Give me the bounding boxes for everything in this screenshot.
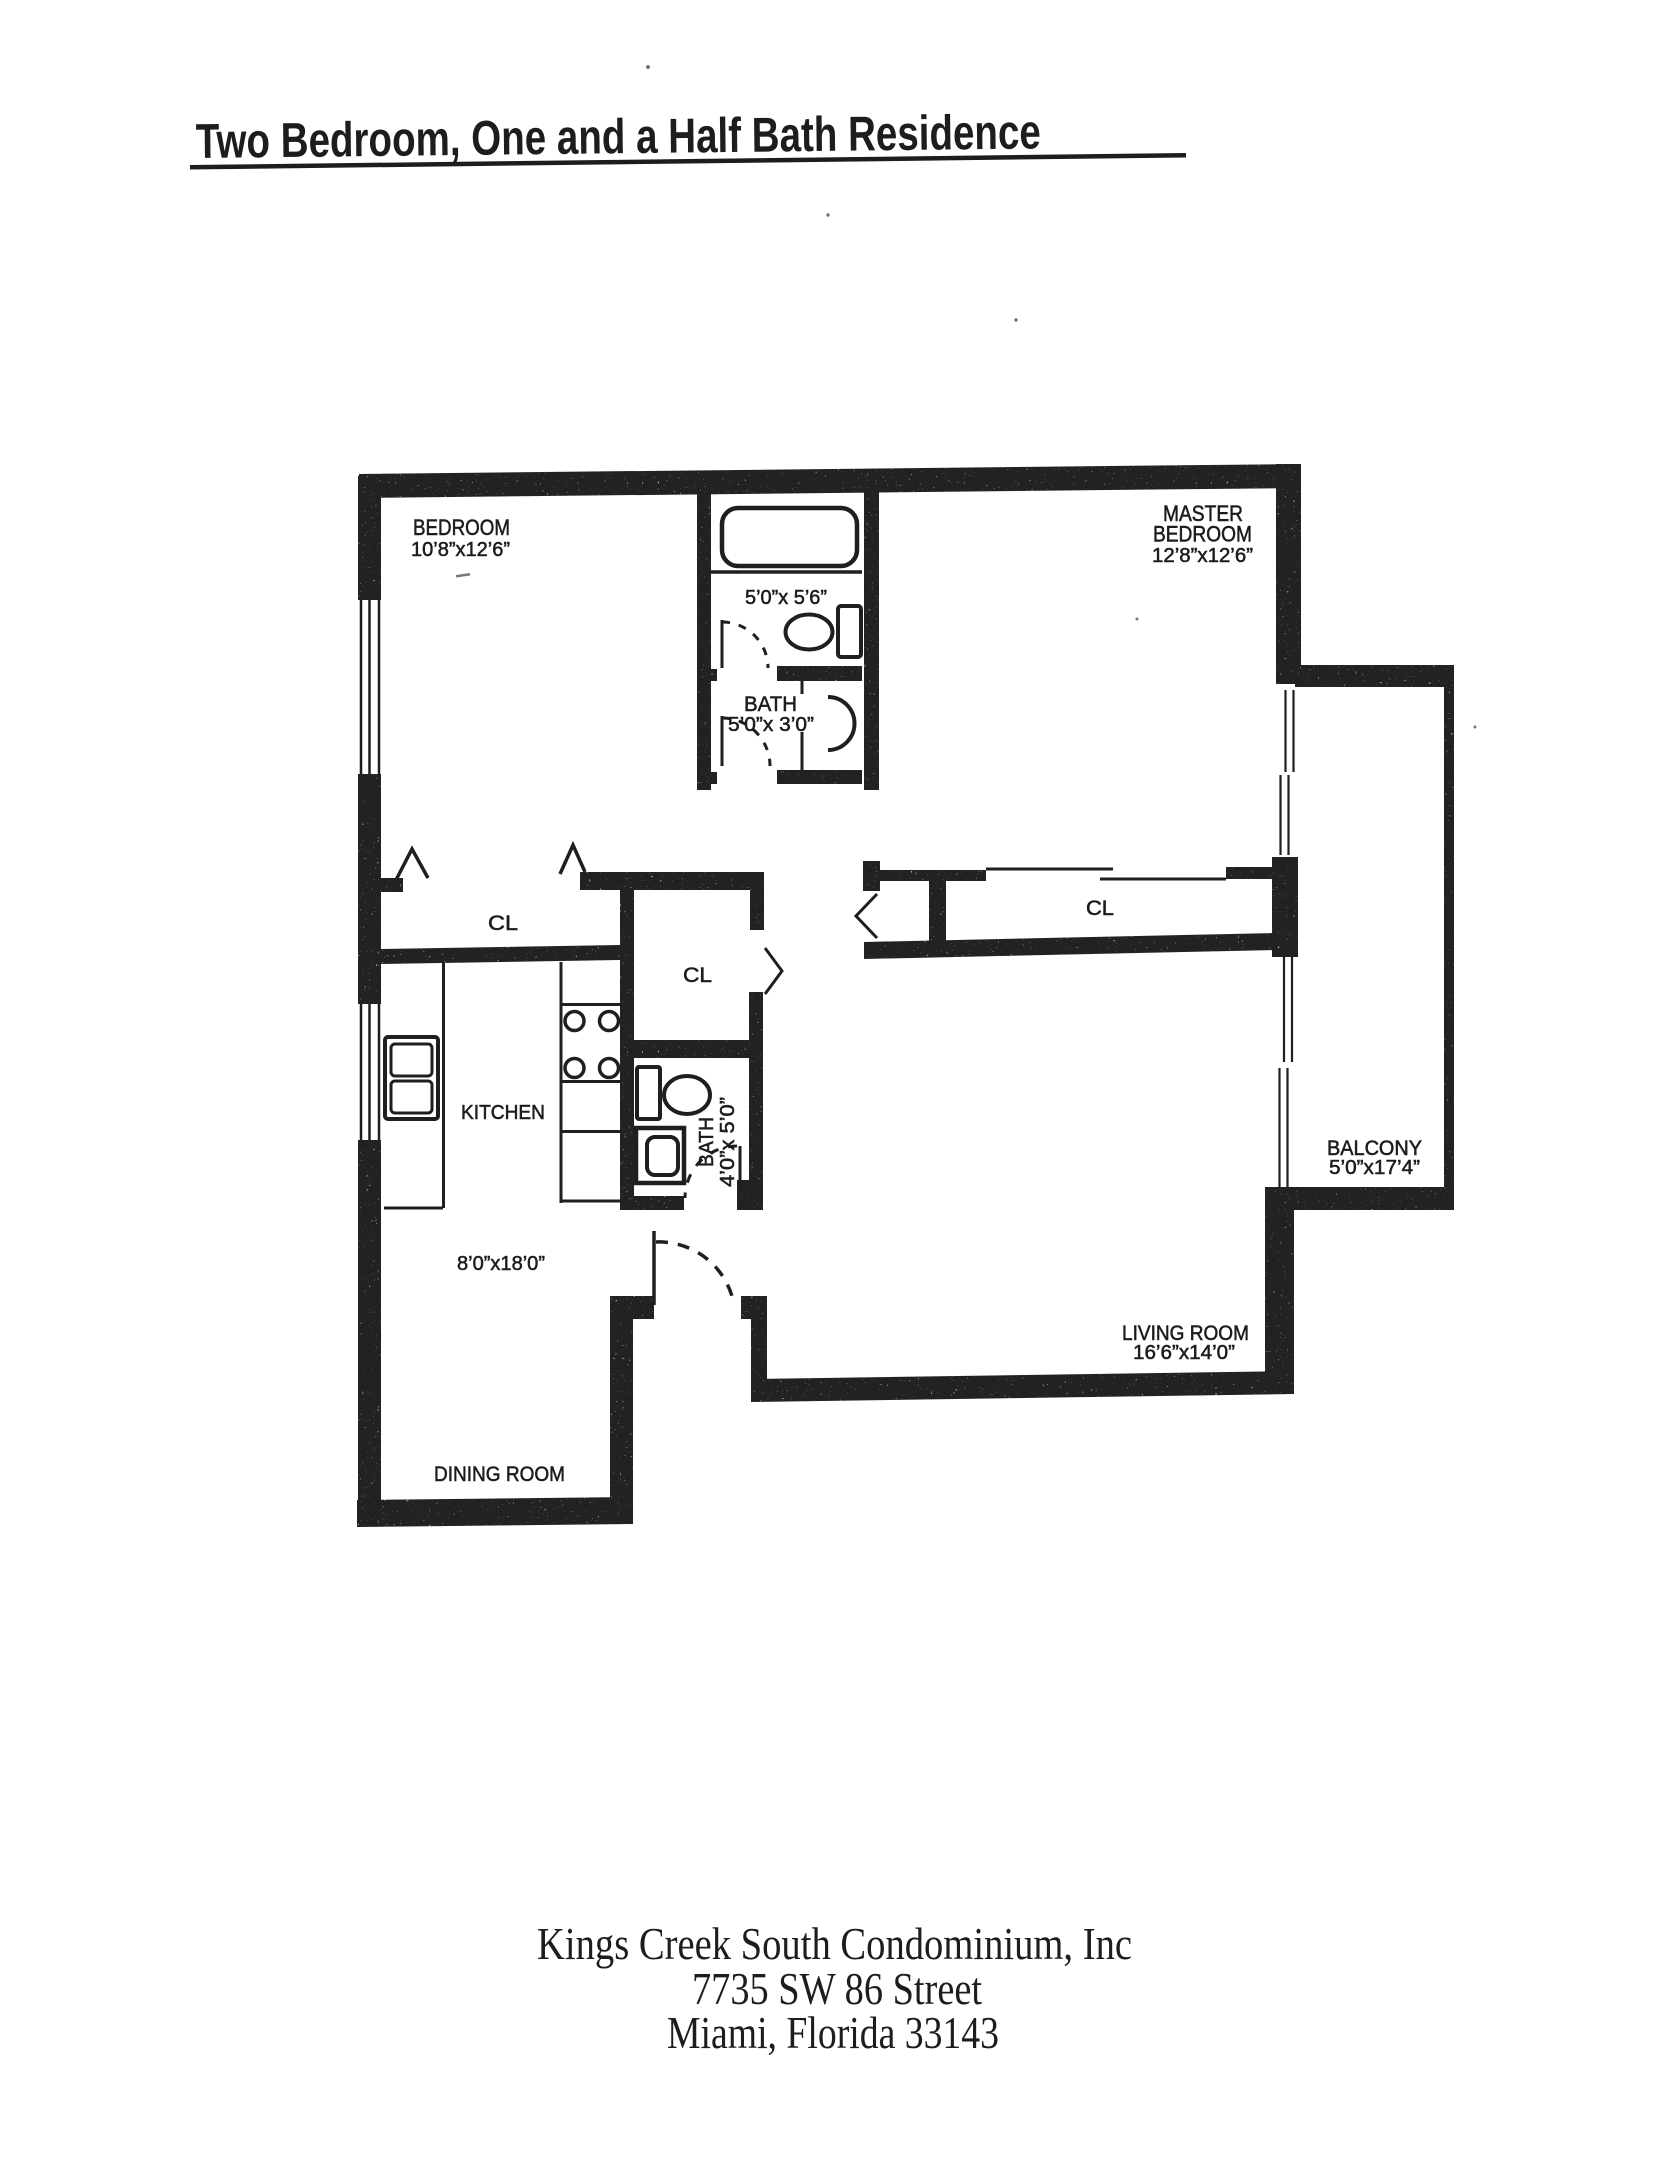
svg-text:BATH: BATH	[696, 1117, 718, 1167]
svg-text:5’0”x 3’0”: 5’0”x 3’0”	[728, 714, 814, 736]
svg-text:16’6”x14’0”: 16’6”x14’0”	[1133, 1342, 1235, 1364]
svg-text:Miami, Florida 33143: Miami, Florida 33143	[667, 2007, 999, 2058]
svg-text:CL: CL	[488, 912, 518, 935]
svg-text:KITCHEN: KITCHEN	[461, 1101, 545, 1124]
svg-text:5’0”x 5’6”: 5’0”x 5’6”	[745, 587, 827, 609]
svg-text:CL: CL	[1086, 897, 1114, 920]
svg-text:12’8”x12’6”: 12’8”x12’6”	[1152, 545, 1253, 567]
svg-text:DINING ROOM: DINING ROOM	[434, 1462, 565, 1486]
svg-text:10’8”x12’6”: 10’8”x12’6”	[411, 539, 510, 561]
svg-text:Kings Creek South Condominium,: Kings Creek South Condominium, Inc	[537, 1918, 1132, 1969]
svg-text:BEDROOM: BEDROOM	[413, 515, 510, 540]
svg-text:4’0”x 5’0”: 4’0”x 5’0”	[717, 1097, 739, 1187]
svg-text:8’0”x18’0”: 8’0”x18’0”	[457, 1253, 545, 1275]
svg-text:CL: CL	[683, 964, 712, 987]
svg-text:5’0”x17’4”: 5’0”x17’4”	[1329, 1157, 1420, 1179]
svg-text:BATH: BATH	[744, 693, 797, 716]
svg-text:BEDROOM: BEDROOM	[1153, 522, 1252, 547]
